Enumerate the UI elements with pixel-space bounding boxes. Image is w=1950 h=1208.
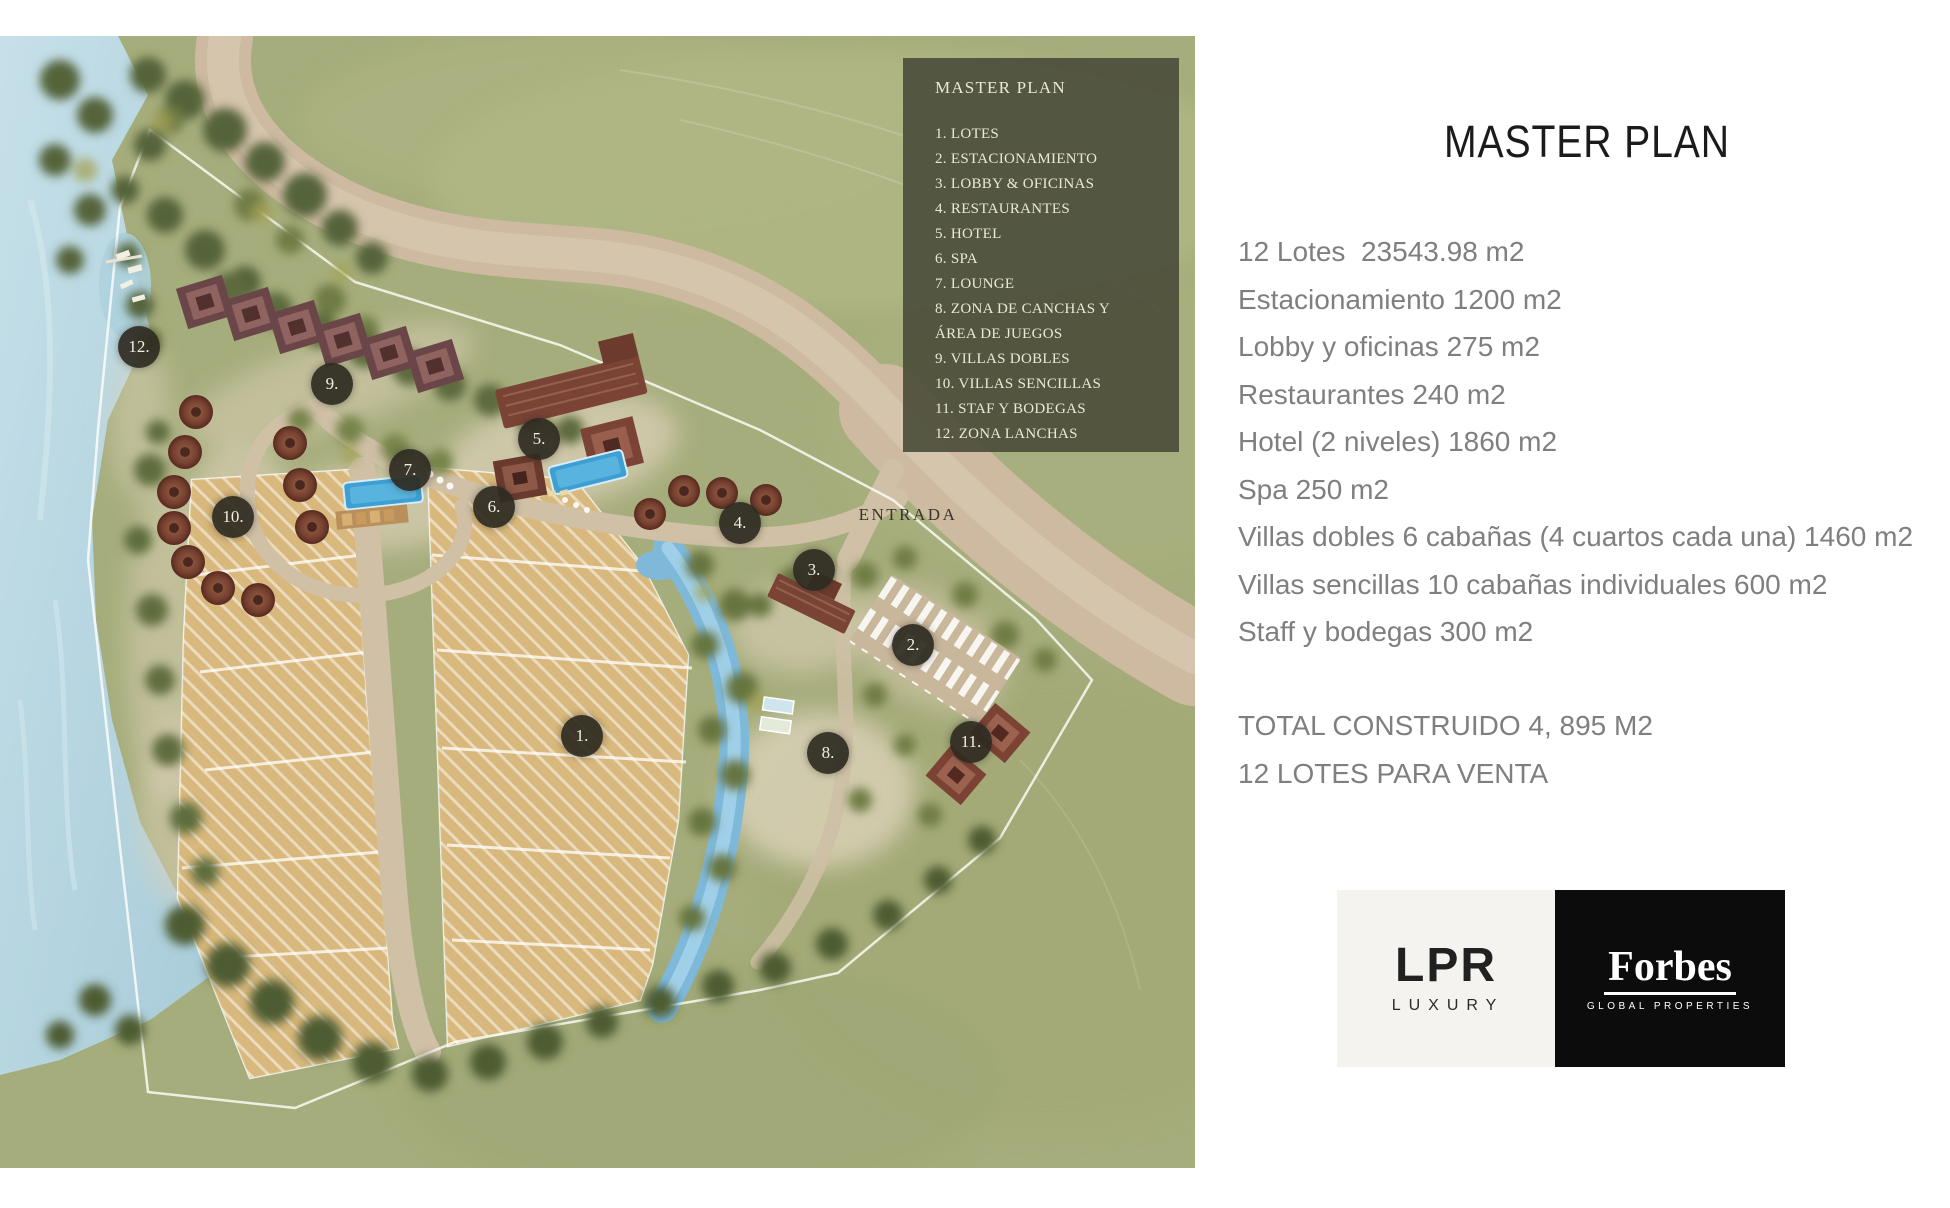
- legend-item: 7. LOUNGE: [935, 272, 1139, 297]
- legend-item: 12. ZONA LANCHAS: [935, 422, 1139, 447]
- entrada-label: ENTRADA: [859, 505, 958, 524]
- panel-area-line: Spa 250 m2: [1238, 466, 1950, 514]
- panel-area-list: 12 Lotes 23543.98 m2Estacionamiento 1200…: [1238, 228, 1950, 656]
- site-map: ENTRADA MASTER PLAN 1. LOTES2. ESTACIONA…: [0, 36, 1195, 1168]
- panel-area-line: Villas dobles 6 cabañas (4 cuartos cada …: [1238, 513, 1950, 561]
- panel-totals: TOTAL CONSTRUIDO 4, 895 M212 LOTES PARA …: [1238, 702, 1938, 798]
- lpr-logo-text: LPR: [1395, 942, 1497, 990]
- map-marker-6: 6.: [473, 486, 515, 528]
- map-marker-8: 8.: [807, 732, 849, 774]
- forbes-logo-text: Forbes: [1604, 946, 1736, 995]
- panel-area-line: Restaurantes 240 m2: [1238, 371, 1950, 419]
- lpr-logo-subtext: LUXURY: [1388, 997, 1505, 1015]
- legend-item: 2. ESTACIONAMIENTO: [935, 147, 1139, 172]
- panel-title: MASTER PLAN: [1444, 116, 1730, 168]
- map-marker-10: 10.: [212, 496, 254, 538]
- logo-row: LPR LUXURY Forbes GLOBAL PROPERTIES: [1337, 890, 1785, 1067]
- map-marker-4: 4.: [719, 502, 761, 544]
- map-legend: MASTER PLAN 1. LOTES2. ESTACIONAMIENTO3.…: [903, 58, 1179, 452]
- legend-item: 6. SPA: [935, 247, 1139, 272]
- panel-total-line: TOTAL CONSTRUIDO 4, 895 M2: [1238, 702, 1938, 750]
- legend-item: 5. HOTEL: [935, 222, 1139, 247]
- map-marker-11: 11.: [950, 721, 992, 763]
- legend-item: 11. STAF Y BODEGAS: [935, 397, 1139, 422]
- panel-area-line: 12 Lotes 23543.98 m2: [1238, 228, 1950, 276]
- legend-items: 1. LOTES2. ESTACIONAMIENTO3. LOBBY & OFI…: [935, 122, 1139, 447]
- panel-total-line: 12 LOTES PARA VENTA: [1238, 750, 1938, 798]
- map-marker-5: 5.: [518, 418, 560, 460]
- forbes-logo-subtext: GLOBAL PROPERTIES: [1587, 1001, 1753, 1012]
- map-marker-12: 12.: [118, 326, 160, 368]
- legend-item: 3. LOBBY & OFICINAS: [935, 172, 1139, 197]
- map-marker-9: 9.: [311, 363, 353, 405]
- map-marker-2: 2.: [892, 624, 934, 666]
- legend-item: 8. ZONA DE CANCHAS Y ÁREA DE JUEGOS: [935, 297, 1139, 347]
- legend-item: 4. RESTAURANTES: [935, 197, 1139, 222]
- forbes-global-properties-logo: Forbes GLOBAL PROPERTIES: [1555, 890, 1785, 1067]
- panel-area-line: Estacionamiento 1200 m2: [1238, 276, 1950, 324]
- panel-area-line: Staff y bodegas 300 m2: [1238, 608, 1950, 656]
- lpr-luxury-logo: LPR LUXURY: [1337, 890, 1555, 1067]
- panel-area-line: Hotel (2 niveles) 1860 m2: [1238, 418, 1950, 466]
- legend-item: 9. VILLAS DOBLES: [935, 347, 1139, 372]
- legend-item: 10. VILLAS SENCILLAS: [935, 372, 1139, 397]
- legend-title: MASTER PLAN: [935, 78, 1139, 98]
- map-marker-3: 3.: [793, 549, 835, 591]
- map-marker-1: 1.: [561, 715, 603, 757]
- legend-item: 1. LOTES: [935, 122, 1139, 147]
- panel-area-line: Lobby y oficinas 275 m2: [1238, 323, 1950, 371]
- panel-area-line: Villas sencillas 10 cabañas individuales…: [1238, 561, 1950, 609]
- map-marker-7: 7.: [389, 449, 431, 491]
